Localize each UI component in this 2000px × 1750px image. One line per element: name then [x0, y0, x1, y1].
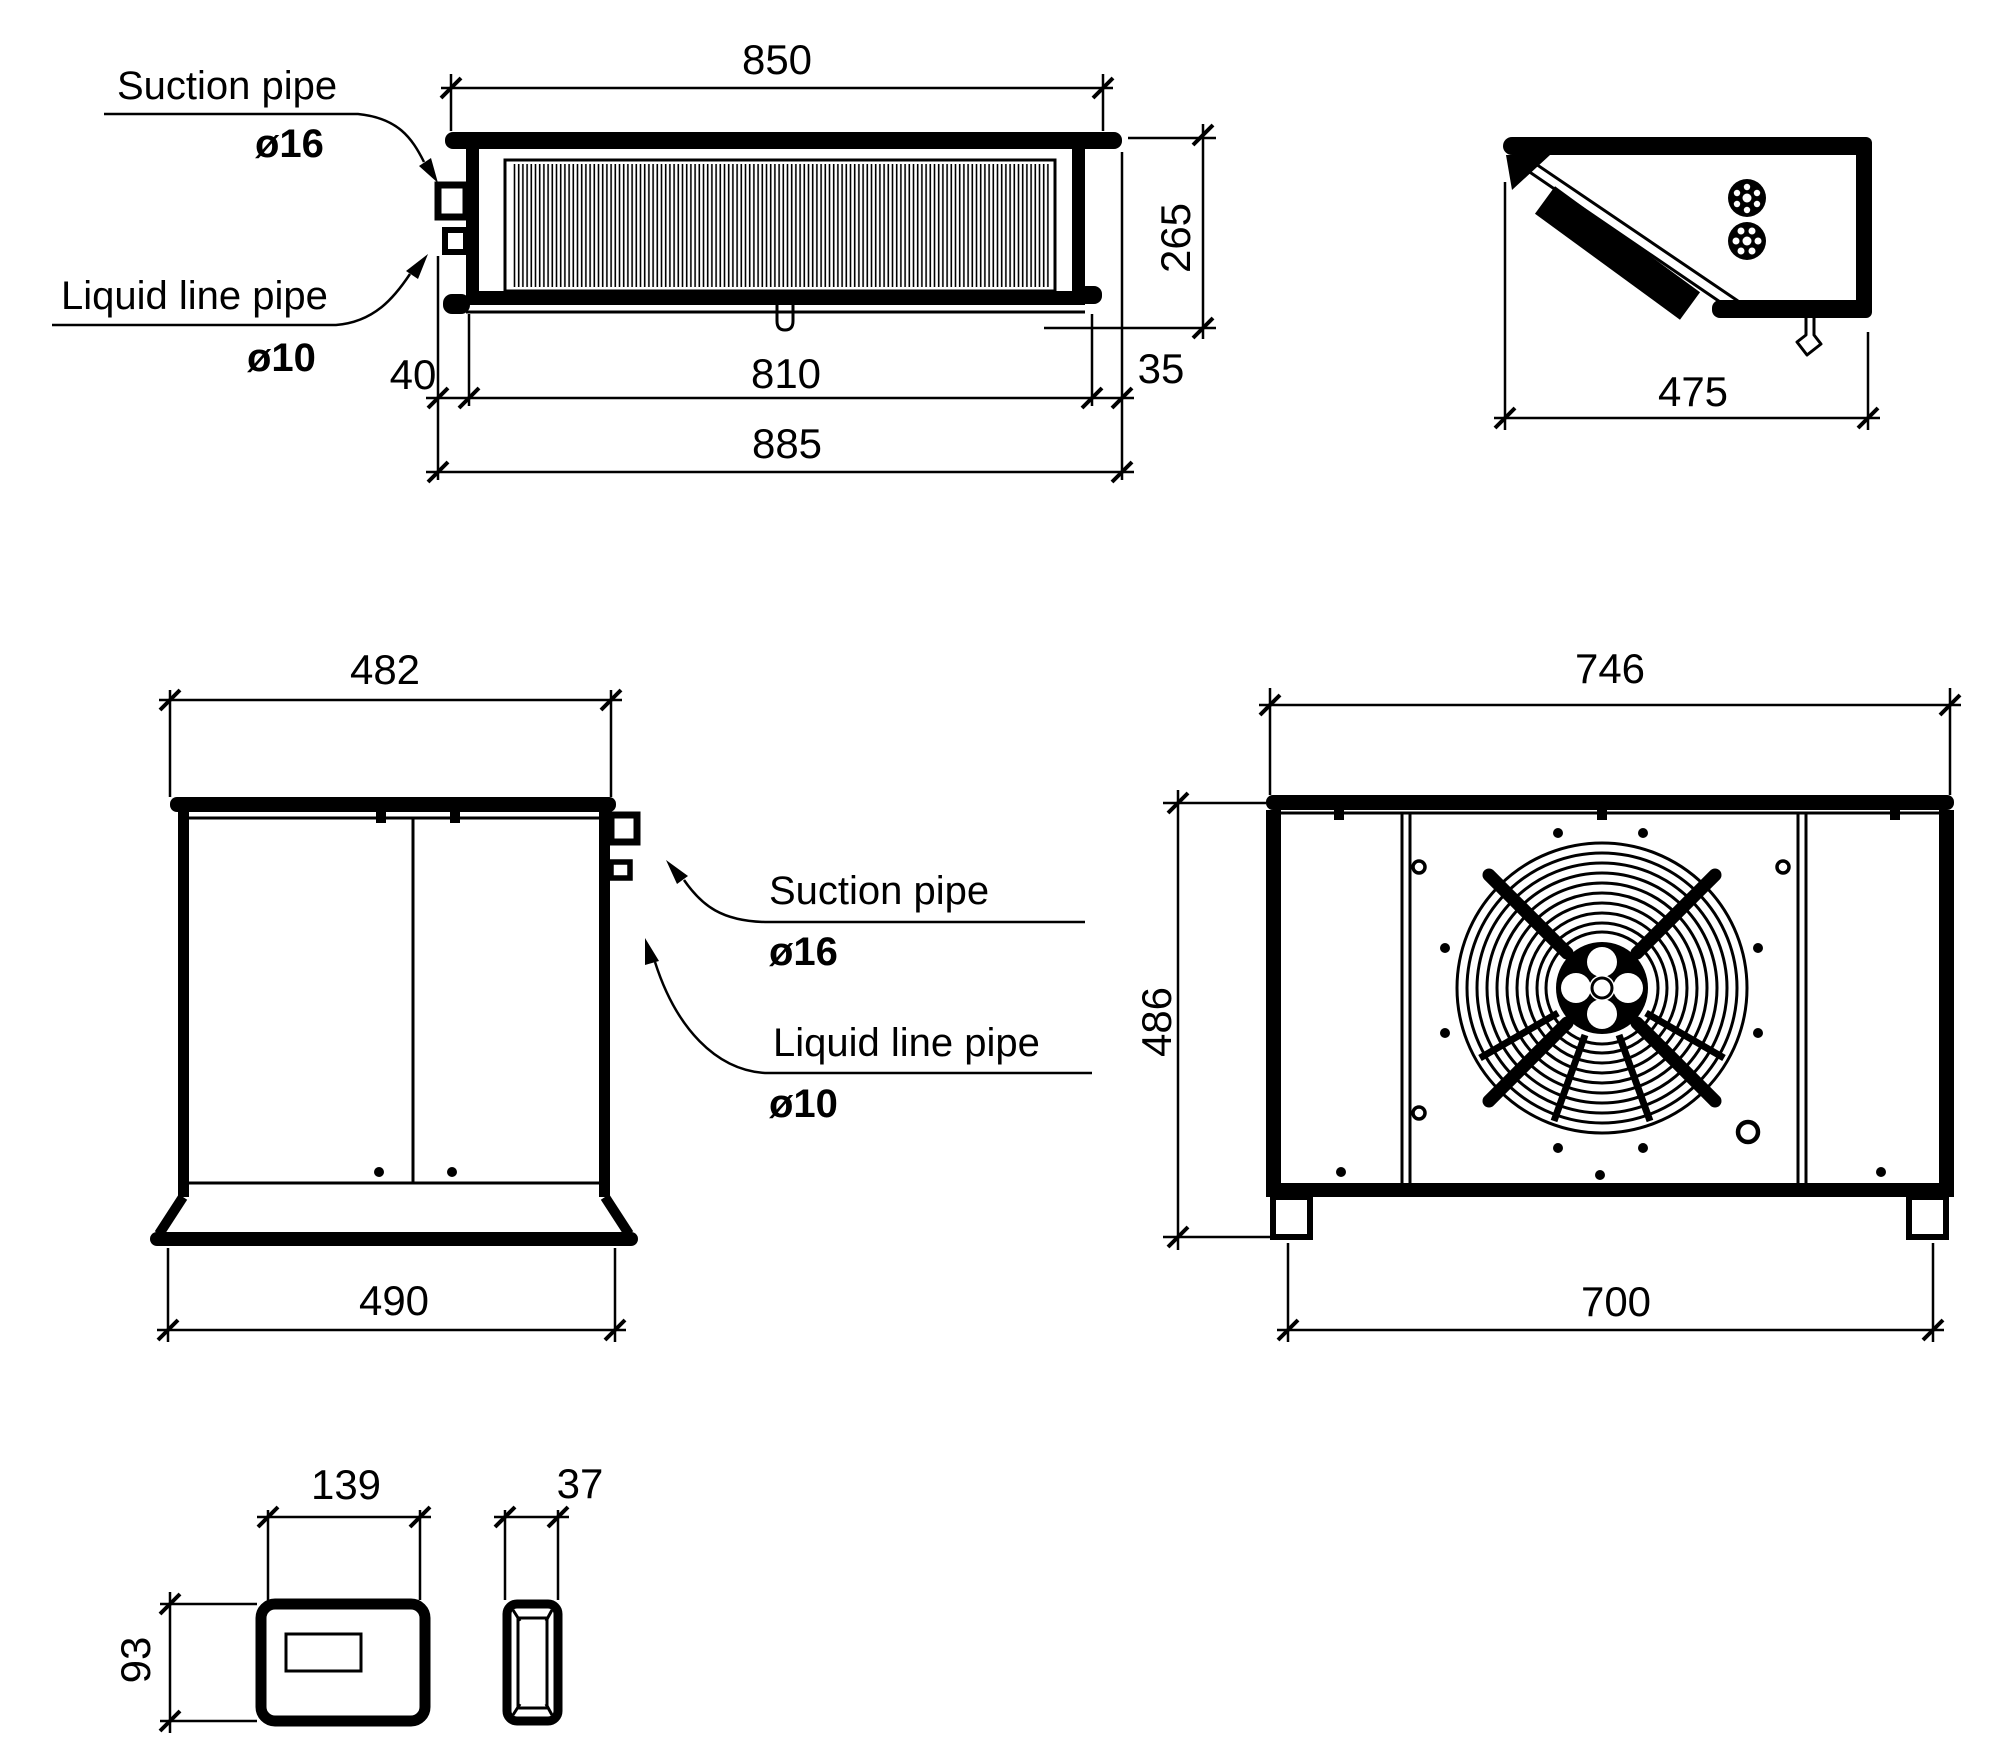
- suction-pipe-label-top: Suction pipe: [117, 66, 337, 106]
- dim-810: 810: [751, 353, 821, 395]
- drawing-canvas: Suction pipe ø16 Liquid line pipe ø10 85…: [0, 0, 2000, 1750]
- drain-stub: [777, 305, 793, 330]
- liquid-pipe-dia-front: ø10: [769, 1084, 838, 1124]
- suction-pipe-dia-front: ø16: [769, 932, 838, 972]
- dim-850: 850: [742, 39, 812, 81]
- dim-700: 700: [1581, 1281, 1651, 1323]
- liquid-pipe-label-top: Liquid line pipe: [61, 276, 328, 316]
- dim-885: 885: [752, 423, 822, 465]
- pipe-flange-bottom: [1728, 222, 1766, 260]
- front-liquid-stub: [611, 862, 630, 878]
- condensing-unit-front-view: [1163, 688, 1961, 1342]
- pipe-flange-top: [1728, 179, 1766, 217]
- dim-139: 139: [311, 1464, 381, 1506]
- evap-top-mounting-flange: [445, 132, 1122, 149]
- dim-482: 482: [350, 649, 420, 691]
- left-foot: [1273, 1197, 1310, 1237]
- side-drain-elbow: [1797, 318, 1821, 355]
- liquid-pipe-dia-top: ø10: [247, 338, 316, 378]
- dim-265: 265: [1155, 203, 1197, 273]
- right-foot: [1909, 1197, 1946, 1237]
- suction-pipe-label-front: Suction pipe: [769, 871, 989, 911]
- dim-93: 93: [115, 1637, 157, 1684]
- suction-pipe-dia-top: ø16: [255, 124, 324, 164]
- dim-35: 35: [1138, 348, 1185, 390]
- liquid-pipe-stub: [445, 230, 466, 252]
- evaporator-front-view: [150, 690, 1092, 1342]
- dim-746: 746: [1575, 648, 1645, 690]
- suction-pipe-stub: [438, 185, 466, 217]
- controller-side: [507, 1604, 558, 1721]
- suction-leader-arrow: [419, 158, 438, 183]
- front-liquid-leader-arrow: [645, 938, 659, 965]
- front-suction-stub: [611, 815, 637, 842]
- dim-475: 475: [1658, 371, 1728, 413]
- controller-box-views: [160, 1507, 569, 1733]
- liquid-pipe-label-front: Liquid line pipe: [773, 1023, 1040, 1063]
- dim-40: 40: [390, 354, 437, 396]
- technical-drawing-svg: [0, 0, 2000, 1750]
- dim-37: 37: [557, 1463, 604, 1505]
- dim-490: 490: [359, 1280, 429, 1322]
- dim-486: 486: [1136, 987, 1178, 1057]
- fan-guard: [1457, 843, 1747, 1133]
- evap-coil-fins: [513, 164, 1049, 287]
